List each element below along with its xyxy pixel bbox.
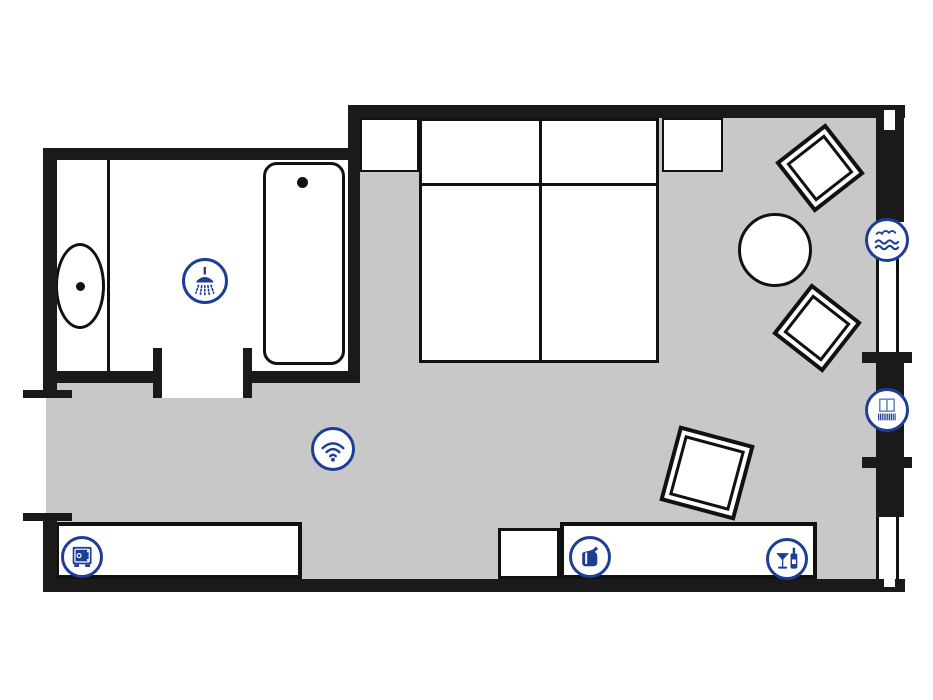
entry-door-jamb-top — [23, 390, 72, 398]
minibar-icon — [766, 538, 808, 580]
wall-right-pier-1 — [862, 352, 912, 363]
bathroom-partition-line — [107, 160, 110, 371]
wall-right-lower — [876, 468, 904, 517]
wall-right-pier-2 — [862, 457, 912, 468]
balcony-icon — [865, 388, 909, 432]
bathtub — [263, 162, 345, 365]
double-bed — [419, 118, 659, 363]
window-2-frame-outer — [896, 517, 899, 579]
nightstand-left — [360, 118, 419, 172]
wall-bathroom-top — [43, 148, 360, 160]
safe-icon — [61, 536, 103, 578]
window-2-frame-inner — [876, 517, 879, 579]
wall-bathroom-bottom-right — [243, 371, 360, 383]
wall-right-top-notch — [884, 110, 895, 130]
bathroom-door-jamb-left — [153, 348, 162, 398]
wall-bathroom-bottom-left — [43, 371, 162, 383]
wall-bathroom-divider — [348, 105, 360, 372]
wall-right-bottom-notch — [884, 572, 895, 587]
bed-center-divider — [539, 121, 542, 360]
armchair-3-seat — [669, 435, 745, 511]
bathroom-door-jamb-right — [243, 348, 252, 398]
side-table — [498, 528, 560, 579]
toilet-dot — [76, 282, 85, 291]
wall-bottom — [43, 579, 905, 592]
wall-left-upper — [43, 148, 57, 398]
round-table — [738, 213, 812, 287]
shower-icon — [182, 258, 228, 304]
sea-view-icon — [865, 218, 909, 262]
bathroom-door-opening — [162, 371, 243, 398]
wall-top — [348, 105, 905, 118]
nightstand-right — [662, 118, 723, 172]
kettle-icon — [569, 536, 611, 578]
wifi-icon — [311, 427, 355, 471]
bathtub-drain-dot — [297, 177, 308, 188]
floor-plan — [0, 0, 933, 700]
